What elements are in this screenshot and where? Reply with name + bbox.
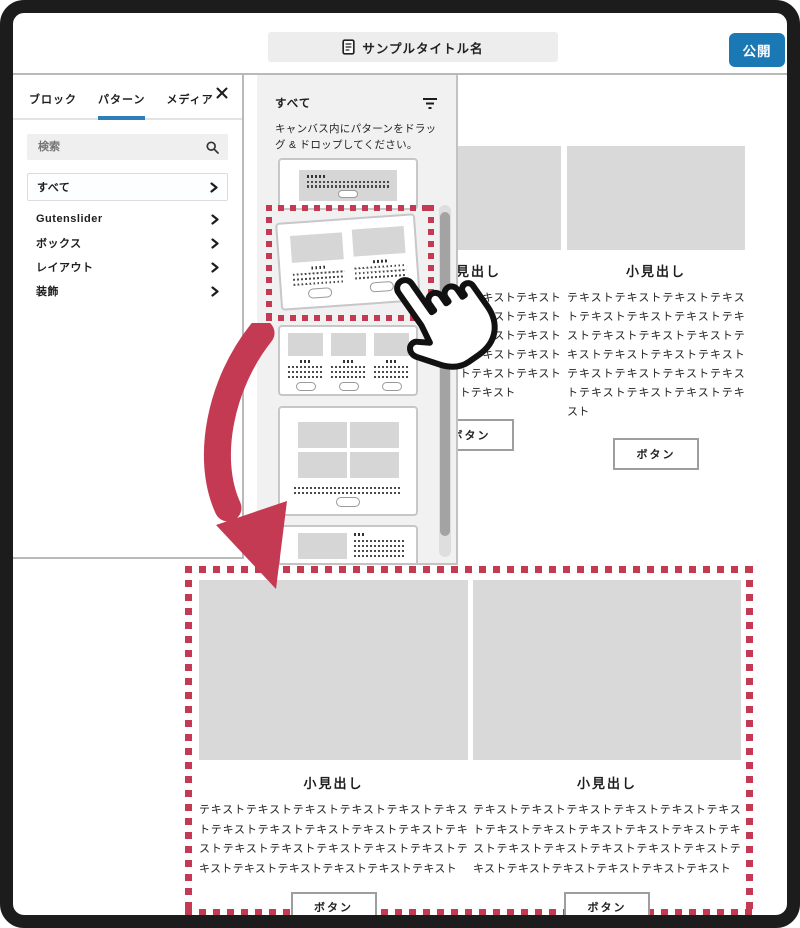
column-button[interactable]: ボタン <box>291 892 377 922</box>
category-box[interactable]: ボックス <box>27 231 228 255</box>
panel-header-label: すべて <box>275 95 311 111</box>
selection-border-bottom <box>266 315 434 321</box>
dropzone-border-right <box>746 566 753 916</box>
chevron-right-icon <box>211 262 219 273</box>
tab-patterns[interactable]: パターン <box>98 91 145 120</box>
tab-media[interactable]: メディア <box>166 91 213 120</box>
pattern-drop-zone[interactable]: 小見出し テキストテキストテキストテキストテキストテキストテキストテキストテキス… <box>185 566 753 916</box>
column-body-text: テキストテキストテキストテキストテキストテキストテキストテキストテキストテキスト… <box>199 801 468 879</box>
pattern-thumb-two-columns[interactable] <box>275 213 421 311</box>
selection-border-right <box>428 205 434 321</box>
search-input[interactable] <box>36 140 206 154</box>
dropped-column-left: 小見出し テキストテキストテキストテキストテキストテキストテキストテキストテキス… <box>199 580 468 922</box>
image-placeholder <box>473 580 741 760</box>
publish-button[interactable]: 公開 <box>729 33 785 67</box>
document-icon <box>342 39 355 55</box>
chevron-right-icon <box>210 182 218 193</box>
document-title-text: サンプルタイトル名 <box>362 38 483 57</box>
pattern-category-list: すべて Gutenslider ボックス レイアウト 装飾 <box>27 173 228 303</box>
chevron-right-icon <box>211 214 219 225</box>
column-body-text: テキストテキストテキストテキストテキストテキストテキストテキストテキストテキスト… <box>473 801 741 879</box>
pattern-thumb-media-text[interactable] <box>278 525 418 565</box>
chevron-right-icon <box>211 238 219 249</box>
image-placeholder <box>199 580 468 760</box>
category-decoration[interactable]: 装飾 <box>27 279 228 303</box>
selection-border-left <box>266 205 272 321</box>
dropzone-border-top <box>185 566 753 573</box>
pattern-explorer-panel: すべて キャンバス内にパターンをドラッグ & ドロップしてください。 <box>257 75 458 565</box>
pattern-thumb-text[interactable] <box>278 158 418 210</box>
column-button[interactable]: ボタン <box>564 892 650 922</box>
image-placeholder <box>567 146 745 250</box>
close-icon[interactable] <box>216 87 228 99</box>
selection-border-top <box>266 205 434 211</box>
pattern-thumb-gallery[interactable] <box>278 406 418 516</box>
category-all[interactable]: すべて <box>27 173 228 201</box>
inserter-sidebar: ブロック パターン メディア すべて Gutenslider <box>13 75 244 559</box>
panel-scrollbar-thumb[interactable] <box>440 212 450 536</box>
canvas-column-right: 小見出し テキストテキストテキストテキストテキストテキストテキストテキストテキス… <box>567 146 745 470</box>
dropzone-border-left <box>185 566 192 916</box>
column-heading: 小見出し <box>567 261 745 280</box>
pattern-thumb-three-columns[interactable] <box>278 325 418 396</box>
category-layout[interactable]: レイアウト <box>27 255 228 279</box>
column-button[interactable]: ボタン <box>613 438 699 470</box>
panel-header: すべて <box>257 75 456 111</box>
drag-drop-instruction: キャンバス内にパターンをドラッグ & ドロップしてください。 <box>275 121 438 153</box>
column-body-text: テキストテキストテキストテキストテキストテキストテキストテキストテキストテキスト… <box>567 289 745 422</box>
document-title-field[interactable]: サンプルタイトル名 <box>268 32 558 62</box>
sidebar-tabs: ブロック パターン メディア <box>13 75 242 120</box>
dropped-column-right: 小見出し テキストテキストテキストテキストテキストテキストテキストテキストテキス… <box>473 580 741 922</box>
column-heading: 小見出し <box>473 773 741 792</box>
chevron-right-icon <box>211 286 219 297</box>
editor-window: サンプルタイトル名 公開 小見出し テキストテキストテキストテキストテキストテキ… <box>0 0 800 928</box>
filter-icon[interactable] <box>422 97 438 110</box>
search-icon <box>206 141 219 154</box>
search-box[interactable] <box>27 134 228 160</box>
column-heading: 小見出し <box>199 773 468 792</box>
tab-blocks[interactable]: ブロック <box>29 91 77 120</box>
category-gutenslider[interactable]: Gutenslider <box>27 207 228 231</box>
